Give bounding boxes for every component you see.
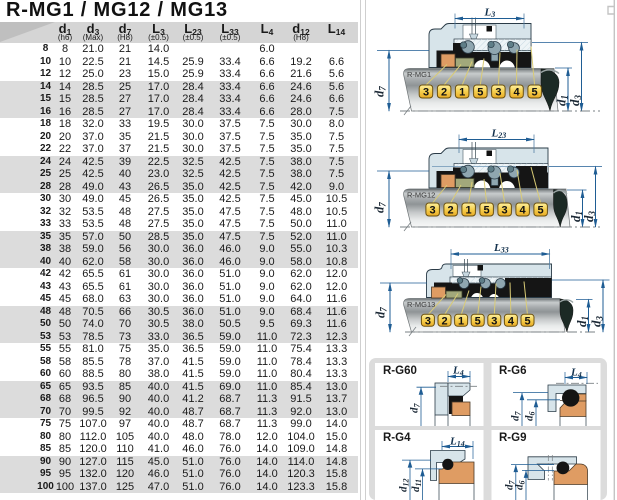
svg-text:d7: d7 <box>373 86 388 97</box>
svg-text:3: 3 <box>491 315 497 327</box>
svg-text:3: 3 <box>423 87 429 99</box>
svg-text:L3: L3 <box>484 7 496 20</box>
svg-text:d7: d7 <box>373 202 388 213</box>
svg-text:5: 5 <box>524 315 530 327</box>
svg-text:R-G4: R-G4 <box>383 432 411 444</box>
svg-text:R-G9: R-G9 <box>499 432 526 444</box>
svg-text:1: 1 <box>458 315 464 327</box>
svg-text:2: 2 <box>448 205 454 217</box>
svg-text:4: 4 <box>520 205 527 217</box>
svg-text:R-MG13: R-MG13 <box>407 300 435 309</box>
svg-text:d7: d7 <box>374 307 389 318</box>
svg-text:3: 3 <box>495 87 501 99</box>
svg-text:d3: d3 <box>589 316 605 328</box>
svg-text:1: 1 <box>466 205 472 217</box>
svg-text:R-MG12: R-MG12 <box>407 191 435 200</box>
svg-text:5: 5 <box>532 87 538 99</box>
svg-text:3: 3 <box>425 315 431 327</box>
svg-text:4: 4 <box>513 87 520 99</box>
svg-text:5: 5 <box>484 205 490 217</box>
svg-text:3: 3 <box>502 205 508 217</box>
svg-text:5: 5 <box>475 315 481 327</box>
svg-text:2: 2 <box>441 315 447 327</box>
svg-text:5: 5 <box>538 205 544 217</box>
svg-text:4: 4 <box>508 315 515 327</box>
svg-text:L33: L33 <box>493 242 509 255</box>
svg-text:R-G6: R-G6 <box>499 365 526 377</box>
svg-text:2: 2 <box>441 87 447 99</box>
svg-text:3: 3 <box>430 205 436 217</box>
svg-text:R-MG1: R-MG1 <box>407 70 431 79</box>
svg-text:1: 1 <box>459 87 465 99</box>
svg-text:L23: L23 <box>491 128 507 141</box>
svg-text:5: 5 <box>477 87 483 99</box>
svg-text:R-G60: R-G60 <box>383 365 417 377</box>
